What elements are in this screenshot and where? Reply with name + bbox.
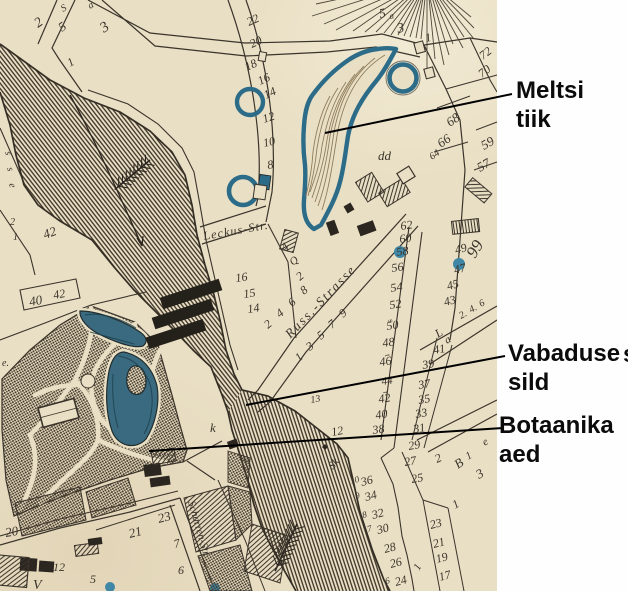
svg-text:33: 33 — [413, 405, 428, 421]
svg-text:6: 6 — [178, 563, 184, 577]
svg-text:38: 38 — [370, 421, 385, 437]
svg-text:56: 56 — [390, 259, 404, 275]
svg-text:V: V — [33, 578, 43, 591]
svg-text:13: 13 — [310, 393, 322, 406]
svg-text:16: 16 — [234, 269, 248, 285]
svg-text:40: 40 — [374, 406, 388, 422]
svg-text:48: 48 — [381, 334, 395, 350]
svg-text:2: 2 — [10, 217, 15, 228]
svg-text:25: 25 — [410, 470, 424, 486]
svg-text:e.: e. — [2, 358, 9, 369]
svg-text:12: 12 — [53, 560, 65, 574]
svg-text:5: 5 — [90, 572, 96, 586]
svg-text:54: 54 — [389, 279, 403, 295]
svg-text:15: 15 — [242, 285, 256, 301]
svg-text:58: 58 — [395, 243, 409, 259]
svg-text:42: 42 — [52, 286, 66, 302]
svg-text:14: 14 — [246, 300, 260, 316]
svg-text:k: k — [210, 420, 216, 435]
svg-text:41: 41 — [432, 341, 446, 357]
svg-text:12: 12 — [330, 423, 344, 439]
svg-text:dd: dd — [378, 148, 392, 163]
svg-text:29: 29 — [407, 437, 421, 453]
svg-text:52: 52 — [388, 296, 402, 312]
svg-text:1: 1 — [13, 232, 18, 243]
